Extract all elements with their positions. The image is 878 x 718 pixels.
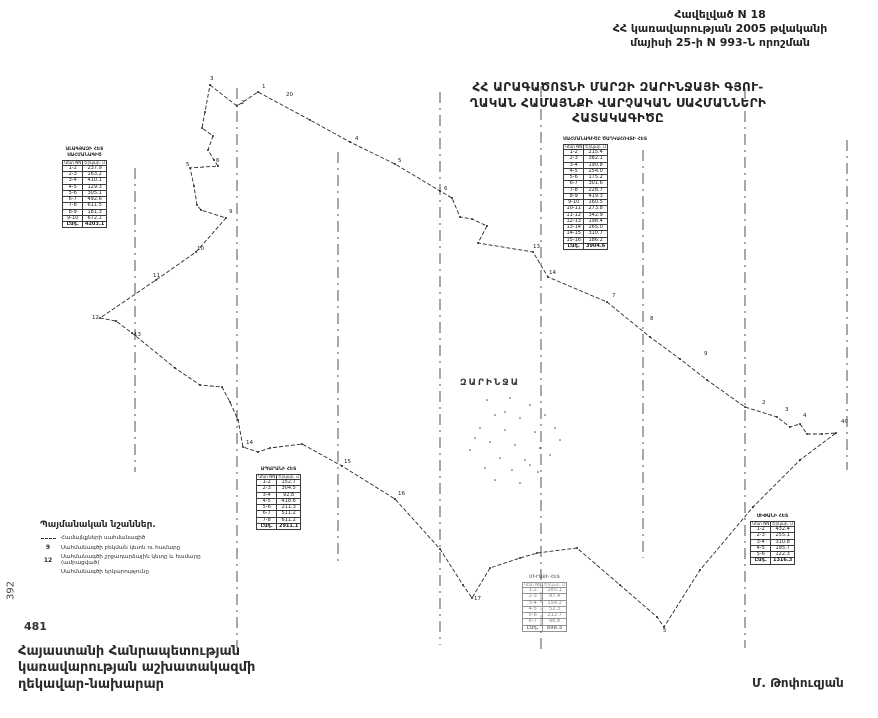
boundary-table-title: ՍԱՀՄԱՆԱԳԻԾ: [62, 154, 107, 159]
boundary-vertex: [532, 251, 534, 253]
boundary-table-title: ՍԱՀՄԱՆԱԳԻԾԸ ԾԱՂԿԱՀՈՎՏԻ ՀԵՏ: [563, 138, 647, 143]
settlement-dot: [529, 404, 531, 406]
boundary-vertex: [155, 279, 157, 281]
boundary-vertex: [131, 332, 133, 334]
footer-line-2: կառավարության աշխատակազմի: [18, 660, 255, 676]
settlement-dot: [549, 454, 551, 456]
page-number: 481: [24, 620, 47, 633]
settlement-dot: [534, 431, 536, 433]
boundary-point-number: 8: [650, 316, 654, 322]
legend-item: Համայնքների սահմանագիծ: [40, 534, 240, 541]
boundary-vertex: [115, 320, 117, 322]
boundary-vertex: [221, 386, 223, 388]
boundary-vertex: [229, 401, 231, 403]
boundary-vertex: [242, 446, 244, 448]
boundary-vertex: [547, 276, 549, 278]
boundary-vertex: [789, 426, 791, 428]
boundary-map: 3212045613147892344065910111213141516175: [0, 0, 878, 718]
boundary-point-number: 4: [355, 136, 359, 142]
settlement-dot: [504, 429, 506, 431]
legend-item-label: Սահմանագծի շրջադարձային կետը և համարը (ա…: [61, 554, 240, 566]
boundary-vertex: [519, 557, 521, 559]
boundary-point-number: 2: [762, 400, 766, 406]
boundary-vertex: [477, 242, 479, 244]
settlement-dot: [479, 427, 481, 429]
table-row: Ընդ.3904.6: [564, 243, 608, 249]
settlement-dot: [504, 411, 506, 413]
boundary-vertex: [699, 569, 701, 571]
boundary-point-number: 13: [533, 244, 540, 250]
boundary-table-5: ՍԻՓԱՆԻ ՀԵՏԿետ NNԵրկար. մ1-2432.42-3255.1…: [750, 515, 795, 565]
boundary-vertex: [706, 379, 708, 381]
boundary-point-number: 9: [704, 351, 708, 357]
boundary-vertex: [799, 459, 801, 461]
dashed-line-icon: [41, 538, 56, 539]
footer-line-1: Հայաստանի Հանրապետության: [18, 644, 255, 660]
boundary-point-number: 16: [398, 491, 405, 497]
boundary-vertex: [439, 190, 441, 192]
place-label: ԶԱՐԻՆՋԱ: [430, 378, 550, 388]
boundary-vertex: [217, 165, 219, 167]
boundary-point-number: 4: [803, 413, 807, 419]
boundary-vertex: [212, 135, 214, 137]
table-cell: Ընդ.: [564, 243, 584, 249]
settlement-dot: [499, 457, 501, 459]
boundary-point-number: 6: [444, 186, 448, 192]
table-row: Ընդ.1316.3: [751, 558, 795, 564]
boundary-vertex: [776, 416, 778, 418]
boundary-point-number: 17: [474, 596, 481, 602]
margin-vertical-number: 392: [6, 571, 17, 611]
settlement-dot: [474, 437, 476, 439]
legend-item: 9Սահմանագծի բեկման կետն ու համարը: [40, 544, 240, 551]
boundary-vertex: [257, 91, 259, 93]
settlement-dot: [486, 399, 488, 401]
boundary-vertex: [341, 465, 343, 467]
settlement-dot: [494, 479, 496, 481]
boundary-vertex: [471, 218, 473, 220]
table-row: Ընդ.2911.1: [257, 523, 301, 529]
settlement-dot: [509, 397, 511, 399]
boundary-vertex: [752, 506, 754, 508]
boundary-vertex: [301, 443, 303, 445]
boundary-point-number: 9: [229, 209, 233, 215]
boundary-table-grid: Կետ NNԵրկար. մ1-2285.12-397.43-4154.24-5…: [522, 582, 567, 632]
settlement-dot: [544, 414, 546, 416]
signature-name: Մ. Թոփուզյան: [752, 676, 844, 690]
boundary-vertex: [204, 111, 206, 113]
table-cell: 2911.1: [277, 523, 300, 529]
boundary-table-1: ԱԼԱԳՅԱԶԻ ՀԵՏՍԱՀՄԱՆԱԳԻԾԿետ NNԵրկար. մ1-22…: [62, 148, 107, 228]
legend-item-label: Համայնքների սահմանագիծ: [61, 535, 145, 541]
boundary-vertex: [576, 547, 578, 549]
boundary-vertex: [821, 433, 823, 435]
boundary-vertex: [309, 119, 311, 121]
settlement-dot: [484, 467, 486, 469]
legend-items: Համայնքների սահմանագիծ9Սահմանագծի բեկման…: [40, 534, 240, 575]
footer-signatory-title: Հայաստանի Հանրապետության կառավարության ա…: [18, 644, 255, 693]
settlement-dot: [519, 417, 521, 419]
boundary-vertex: [99, 317, 101, 319]
table-row: Ընդ.898.5: [523, 625, 567, 631]
settlement-dot: [529, 464, 531, 466]
legend-title: Պայմանական նշաններ.: [40, 520, 240, 530]
boundary-vertex: [196, 204, 198, 206]
legend: Պայմանական նշաններ. Համայնքների սահմանագ…: [40, 520, 240, 578]
boundary-point-number: 5: [663, 628, 667, 634]
boundary-vertex: [486, 225, 488, 227]
table-cell: 4203.1: [83, 222, 106, 228]
boundary-line-symbol: [40, 534, 56, 541]
boundary-point-number: 11: [153, 273, 160, 279]
footer-line-3: ղեկավար-նախարար: [18, 677, 255, 693]
boundary-vertex: [209, 84, 211, 86]
boundary-vertex: [649, 336, 651, 338]
boundary-vertex: [536, 552, 538, 554]
boundary-table-title: ՍԻՓԱՆԻ ՀԵՏ: [750, 515, 795, 520]
settlement-dot: [494, 414, 496, 416]
boundary-table-title: ՄԻՐԱՔԻ ՀԵՏ: [522, 576, 567, 581]
boundary-point-number: 14: [549, 270, 556, 276]
boundary-table-2: ՍԱՀՄԱՆԱԳԻԾԸ ԾԱՂԿԱՀՈՎՏԻ ՀԵՏԿետ NNԵրկար. մ…: [563, 138, 647, 250]
boundary-vertex: [606, 301, 608, 303]
boundary-vertex: [835, 432, 837, 434]
boundary-point-number: 15: [344, 459, 351, 465]
boundary-vertex: [200, 209, 202, 211]
boundary-table-grid: Կետ NNԵրկար. մ1-2432.42-3255.13-4310.84-…: [750, 521, 795, 565]
boundary-vertex: [656, 616, 658, 618]
boundary-point-number: 6: [216, 158, 220, 164]
boundary-vertex: [201, 127, 203, 129]
table-cell: Ընդ.: [257, 523, 277, 529]
boundary-vertex: [257, 451, 259, 453]
boundary-point-number: 3: [785, 407, 789, 413]
table-cell: Ընդ.: [523, 625, 543, 631]
boundary-vertex: [744, 406, 746, 408]
settlement-dot: [539, 447, 541, 449]
boundary-point-number: 5: [186, 162, 190, 168]
point-number-symbol: 9: [40, 544, 56, 551]
table-cell: 1316.3: [771, 558, 794, 564]
scanned-map-page: Հավելված N 18 ՀՀ կառավարության 2005 թվակ…: [0, 0, 878, 718]
table-cell: 898.5: [543, 625, 566, 631]
table-cell: Ընդ.: [751, 558, 771, 564]
boundary-vertex: [451, 197, 453, 199]
boundary-vertex: [459, 216, 461, 218]
table-row: Ընդ.4203.1: [63, 222, 107, 228]
boundary-vertex: [679, 358, 681, 360]
boundary-vertex: [806, 433, 808, 435]
boundary-point-number: 20: [286, 92, 293, 98]
boundary-vertex: [213, 159, 215, 161]
boundary-vertex: [799, 423, 801, 425]
boundary-vertex: [236, 105, 238, 107]
boundary-vertex: [174, 367, 176, 369]
boundary-vertex: [199, 384, 201, 386]
boundary-point-number: 7: [612, 293, 616, 299]
boundary-table-grid: Կետ NNԵրկար. մ1-2215.42-3382.13-4190.84-…: [563, 144, 608, 250]
legend-item-label: Սահմանագծի բեկման կետն ու համարը: [61, 545, 180, 551]
boundary-point-number: 5: [398, 158, 402, 164]
boundary-point-number: 1: [262, 84, 266, 90]
settlement-dot: [554, 427, 556, 429]
settlement-dot: [489, 441, 491, 443]
boundary-table-4: ՄԻՐԱՔԻ ՀԵՏԿետ NNԵրկար. մ1-2285.12-397.43…: [522, 576, 567, 632]
boundary-vertex: [193, 185, 195, 187]
settlement-dot: [537, 471, 539, 473]
boundary-vertex: [394, 498, 396, 500]
boundary-vertex: [269, 447, 271, 449]
boundary-table-grid: Կետ NNԵրկար. մ1-2152.72-3304.53-492.84-5…: [256, 474, 301, 530]
boundary-point-number: 2: [241, 100, 245, 106]
boundary-vertex: [207, 149, 209, 151]
boundary-table-title: ԱՊԱՐԱՆԻ ՀԵՏ: [256, 468, 301, 473]
boundary-vertex: [462, 584, 464, 586]
settlement-dot: [514, 444, 516, 446]
boundary-point-number: 10: [197, 246, 204, 252]
legend-item: Սահմանագծի երկարությունը: [40, 569, 240, 575]
boundary-table-3: ԱՊԱՐԱՆԻ ՀԵՏԿետ NNԵրկար. մ1-2152.72-3304.…: [256, 468, 301, 530]
boundary-point-number: 12: [92, 315, 99, 321]
boundary-vertex: [394, 163, 396, 165]
boundary-vertex: [237, 419, 239, 421]
settlement-dot: [511, 469, 513, 471]
settlement-dot: [519, 482, 521, 484]
settlement-dot: [559, 439, 561, 441]
boundary-point-number: 40: [841, 419, 848, 425]
boundary-vertex: [349, 141, 351, 143]
table-cell: 3904.6: [584, 243, 607, 249]
boundary-point-number: 13: [134, 332, 141, 338]
legend-item: 12Սահմանագծի շրջադարձային կետը և համարը …: [40, 554, 240, 566]
boundary-vertex: [619, 584, 621, 586]
boundary-vertex: [439, 548, 441, 550]
boundary-vertex: [489, 567, 491, 569]
settlement-dot: [469, 449, 471, 451]
boundary-point-number: 14: [246, 440, 253, 446]
legend-item-label: Սահմանագծի երկարությունը: [61, 569, 149, 575]
boundary-vertex: [471, 597, 473, 599]
point-number-symbol: 12: [40, 557, 56, 564]
settlement-dot: [524, 459, 526, 461]
boundary-table-grid: Կետ NNԵրկար. մ1-2237.92-3163.23-4410.14-…: [62, 160, 107, 229]
boundary-vertex: [225, 217, 227, 219]
table-cell: Ընդ.: [63, 222, 83, 228]
boundary-point-number: 3: [210, 76, 214, 82]
